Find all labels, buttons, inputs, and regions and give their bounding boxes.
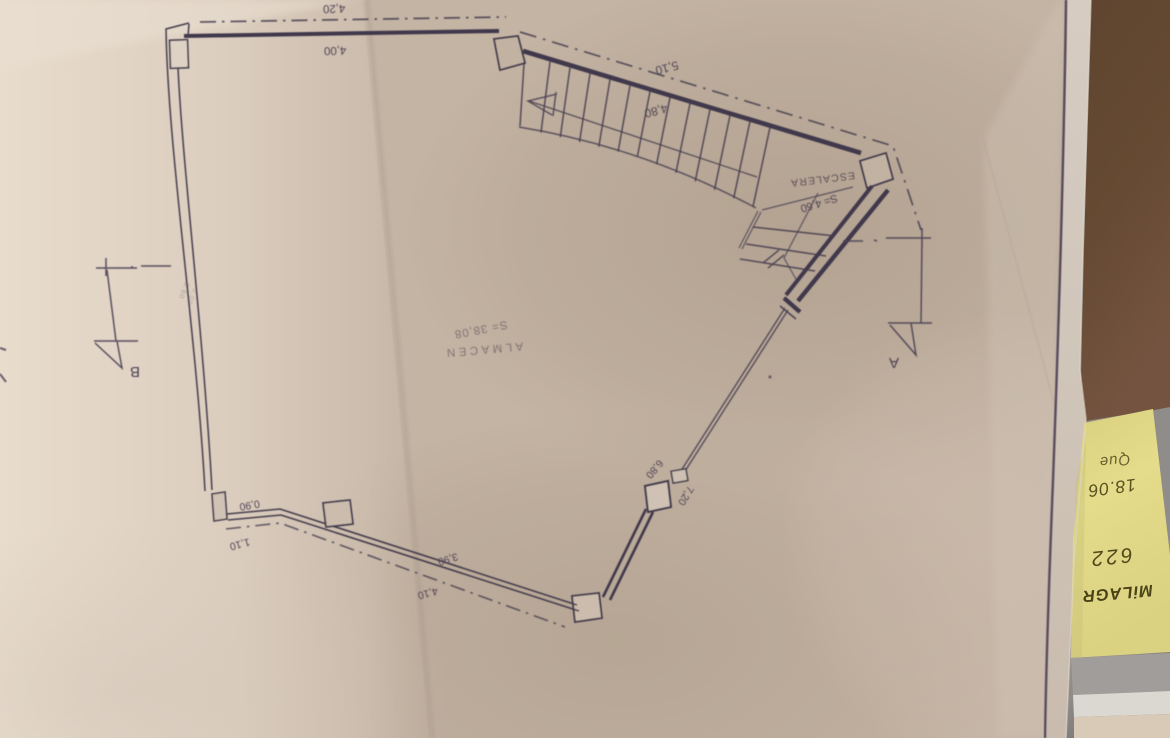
svg-text:A: A — [889, 354, 899, 371]
svg-text:Que: Que — [1098, 450, 1131, 470]
svg-text:622: 622 — [1088, 543, 1134, 570]
svg-text:4,00: 4,00 — [324, 44, 347, 57]
svg-text:B: B — [130, 363, 140, 380]
svg-text:4,20: 4,20 — [323, 2, 346, 15]
